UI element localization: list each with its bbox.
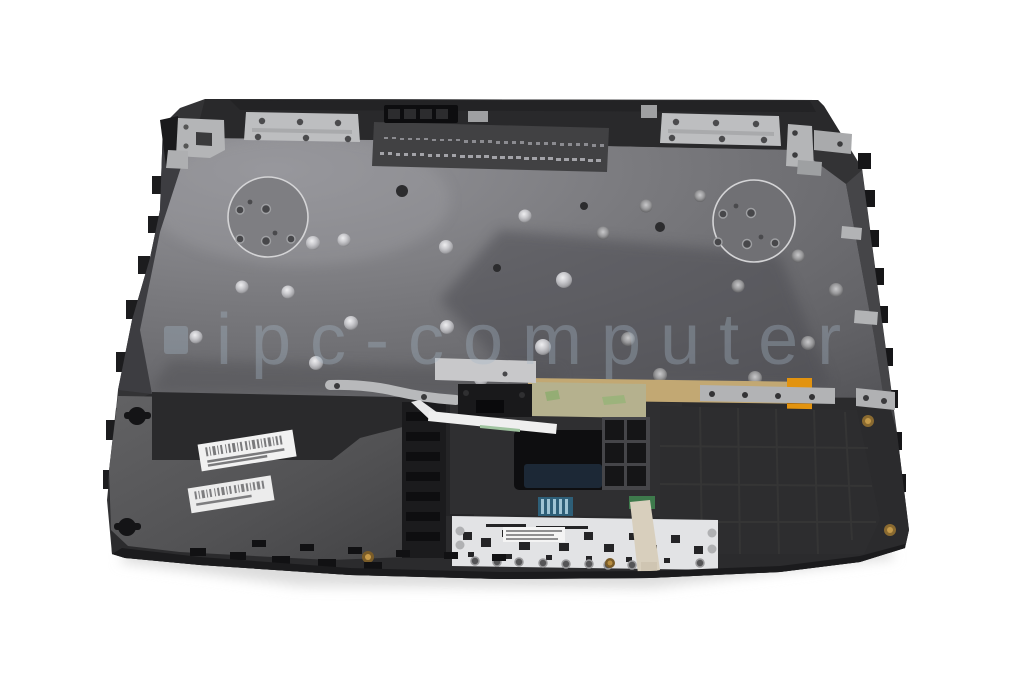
svg-text:ipc-computer: ipc-computer <box>216 300 860 380</box>
